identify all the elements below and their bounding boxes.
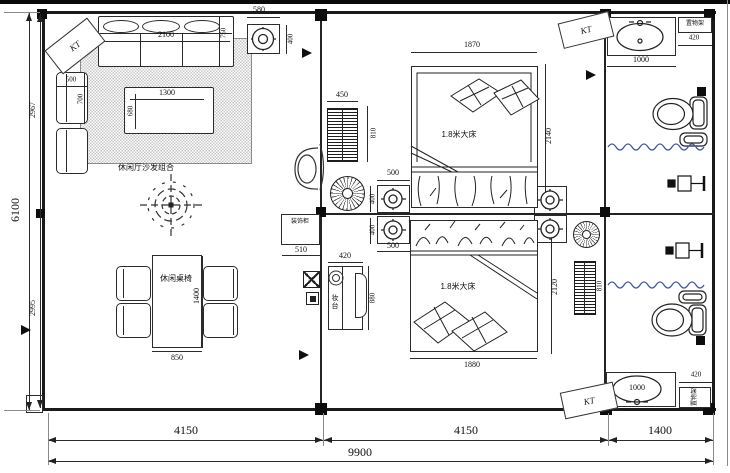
chair-line: [233, 306, 234, 335]
toilet-icon: [653, 97, 707, 146]
dim-light-500: 500: [387, 169, 399, 177]
column: [315, 403, 327, 415]
switch-icon: [303, 271, 320, 288]
dim-bottom-mid: 4150: [454, 424, 478, 436]
dim-line: [57, 86, 87, 87]
dim-shelf-bottom: 420: [691, 372, 702, 379]
dim-line: [679, 382, 712, 383]
dim-ext: [4, 12, 40, 13]
dim-sofa-depth: 750: [221, 28, 228, 39]
chair-line: [233, 269, 234, 298]
dim-bed1-length: 2140: [545, 128, 553, 144]
dim-light-500: 500: [387, 242, 399, 250]
dim-line-left-inner: [40, 14, 41, 408]
dim-line: [377, 180, 410, 181]
shelf-top-label: 置物架: [686, 21, 704, 27]
dining-chair: [116, 266, 151, 301]
vanity-top: [607, 17, 676, 56]
chair-line: [123, 269, 124, 298]
ac-label: KT: [68, 39, 83, 54]
dim-light-width: 580: [253, 6, 265, 14]
dim-light-400: 400: [370, 225, 377, 236]
dim-line: [678, 45, 712, 46]
ceiling-light-box: [534, 186, 567, 214]
dining-label: 休闲桌椅: [160, 275, 192, 283]
dim-line: [367, 106, 368, 162]
armchair: [56, 128, 88, 174]
dim-line-bottom-2: [48, 461, 713, 462]
dim-arrow: [37, 400, 43, 408]
dim-dining-length: 1400: [193, 288, 201, 304]
shower-icon: [666, 243, 702, 258]
ac-label: KT: [579, 24, 592, 36]
dim-line: [607, 66, 676, 67]
shelf-bottom-label: 置物架: [692, 388, 698, 406]
wall-bedroom-divider: [320, 213, 714, 215]
ceiling-fan-icon: [140, 174, 202, 236]
toilet-icon: [652, 291, 706, 336]
dim-line: [327, 101, 358, 102]
shower-curtain-wave: [608, 144, 704, 150]
dim-line: [377, 251, 410, 252]
dresser-line: [342, 267, 343, 329]
column: [696, 336, 705, 345]
drawing-border-right: [727, 0, 728, 466]
dim-line: [328, 262, 363, 263]
dim-radiator2-height: 810: [597, 281, 604, 292]
dim-arrow: [48, 458, 56, 464]
dim-bottom-left: 4150: [174, 424, 198, 436]
dim-arrow: [609, 437, 617, 443]
sofa-cushion: [103, 20, 139, 33]
fan-icon: [330, 176, 365, 211]
cabinet-label: 装饰柜: [291, 219, 309, 225]
ac-label: KT: [583, 394, 596, 406]
column: [315, 9, 327, 21]
wall-right: [712, 11, 715, 411]
dim-vanity-top: 1000: [633, 56, 649, 64]
column: [697, 87, 706, 96]
shower-icon: [668, 176, 704, 191]
dim-arrow: [324, 437, 332, 443]
column: [600, 207, 610, 217]
dim-ext: [713, 413, 714, 465]
dim-line: [130, 99, 204, 100]
ceiling-light-box: [377, 216, 410, 244]
dim-coffee-depth: 680: [128, 106, 135, 117]
ceiling-light-box: [247, 24, 280, 54]
dim-radiator-width: 450: [336, 91, 348, 99]
dim-line: [410, 358, 537, 359]
sofa-line: [140, 34, 141, 66]
dim-bed1-width: 1870: [464, 41, 480, 49]
dim-shelf-top: 420: [689, 35, 700, 42]
radiator: [574, 261, 596, 315]
dim-bottom-total: 9900: [348, 446, 372, 458]
door-marker-icon: [299, 350, 309, 360]
dim-line: [135, 94, 136, 129]
dim-armchair-depth: 700: [78, 94, 85, 105]
dim-line: [411, 52, 537, 53]
door-marker-icon: [21, 325, 31, 335]
dim-left-upper: 2967: [29, 102, 37, 118]
dim-dresser-width: 420: [339, 252, 351, 260]
dim-radiator-height: 810: [371, 128, 378, 139]
dim-line: [103, 41, 230, 42]
dim-bed2-length: 2120: [551, 279, 559, 295]
radiator-line: [584, 262, 585, 314]
outlet-icon: [306, 292, 319, 305]
floor-plan: KT KT KT 2100 750 580 400 500 700 1300 6…: [0, 0, 730, 473]
fan-icon: [573, 221, 600, 248]
dim-vanity-bottom: 1000: [629, 384, 645, 392]
dim-light-height: 400: [288, 34, 295, 45]
wall-top: [40, 11, 716, 14]
dim-ext: [4, 410, 40, 411]
dim-coffee-width: 1300: [159, 89, 175, 97]
dim-arrow: [26, 13, 32, 21]
dim-light-400: 400: [370, 194, 377, 205]
dim-dresser-length: 880: [370, 293, 377, 304]
armchair-line: [66, 130, 67, 172]
dim-arrow: [48, 437, 56, 443]
dim-arrow: [26, 402, 32, 410]
dim-armchair-width: 500: [66, 77, 77, 84]
dim-left-total: 6100: [9, 198, 21, 222]
dim-cabinet-width: 510: [295, 246, 307, 254]
dim-dining-width: 850: [171, 354, 183, 362]
dresser-label: 妆台: [329, 294, 339, 310]
dim-arrow: [705, 437, 713, 443]
bed2-label: 1.8米大床: [440, 283, 475, 291]
sofa-area-label: 休闲厅沙发组合: [118, 164, 174, 172]
door-marker-icon: [302, 48, 312, 58]
dim-line: [202, 256, 203, 348]
dim-sofa-width: 2100: [158, 31, 174, 39]
dim-line: [282, 255, 320, 256]
dim-line: [247, 17, 280, 18]
dim-left-lower: 2995: [29, 300, 37, 316]
dim-line-left-outer: [29, 13, 30, 410]
drawing-border-bottom: [0, 0, 730, 4]
dim-bed2-width: 1880: [464, 361, 480, 369]
radiator-line: [342, 109, 343, 161]
shower-curtain-wave: [608, 282, 704, 288]
dim-arrow: [315, 437, 323, 443]
dresser-chair: [355, 273, 367, 318]
dim-bottom-right: 1400: [648, 424, 672, 436]
dim-line: [219, 17, 220, 66]
dim-arrow: [37, 14, 43, 22]
dim-line: [152, 351, 202, 352]
sofa-cushion: [184, 20, 220, 33]
dining-chair: [116, 303, 151, 338]
chair-line: [123, 306, 124, 335]
ceiling-light-box: [377, 185, 410, 213]
sofa-line: [182, 34, 183, 66]
dim-arrow: [600, 437, 608, 443]
bed1-label: 1.8米大床: [441, 131, 476, 139]
door-marker-icon: [586, 70, 596, 80]
dim-arrow: [705, 458, 713, 464]
